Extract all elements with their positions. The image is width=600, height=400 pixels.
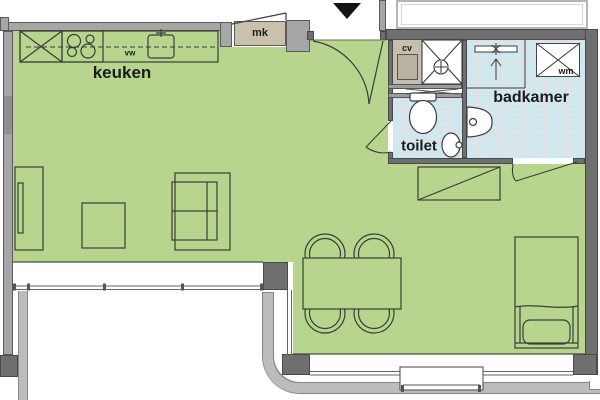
linework xyxy=(0,0,600,400)
wardrobe xyxy=(418,167,500,200)
dining-table xyxy=(303,258,401,309)
toilet-bowl xyxy=(410,93,437,134)
window-south-left xyxy=(13,262,263,291)
juliet-balcony xyxy=(400,367,483,390)
entrance-door xyxy=(310,40,386,104)
toilet-hand-basin xyxy=(442,133,462,157)
label-washing-machine: wm xyxy=(558,66,573,76)
label-toilet: toilet xyxy=(401,138,437,155)
floor-plan: keuken badkamer toilet mk cv vw wm xyxy=(0,0,600,400)
facade-line-west xyxy=(288,290,292,355)
up-arrow-icon xyxy=(491,59,501,80)
toilet-door xyxy=(366,121,391,153)
entrance-arrow-icon xyxy=(333,3,361,19)
label-kitchen: keuken xyxy=(93,63,152,83)
sink-tap-icon xyxy=(156,29,166,37)
label-dishwasher: vw xyxy=(125,49,136,58)
side-table xyxy=(82,203,125,248)
bathroom-washbasin xyxy=(467,107,492,137)
bed xyxy=(515,237,578,348)
meter-cupboard-door xyxy=(232,13,286,24)
pillow xyxy=(523,320,570,344)
sofa xyxy=(172,173,230,250)
kitchen-counter xyxy=(20,29,218,62)
window-south-right xyxy=(293,354,585,392)
cabinet xyxy=(15,167,43,250)
label-central-heating: cv xyxy=(402,43,412,53)
bathroom-door xyxy=(512,162,577,181)
shower xyxy=(422,40,462,84)
label-meter-cupboard: mk xyxy=(252,27,268,39)
label-bathroom: badkamer xyxy=(493,89,569,107)
shower-zone xyxy=(467,40,525,88)
